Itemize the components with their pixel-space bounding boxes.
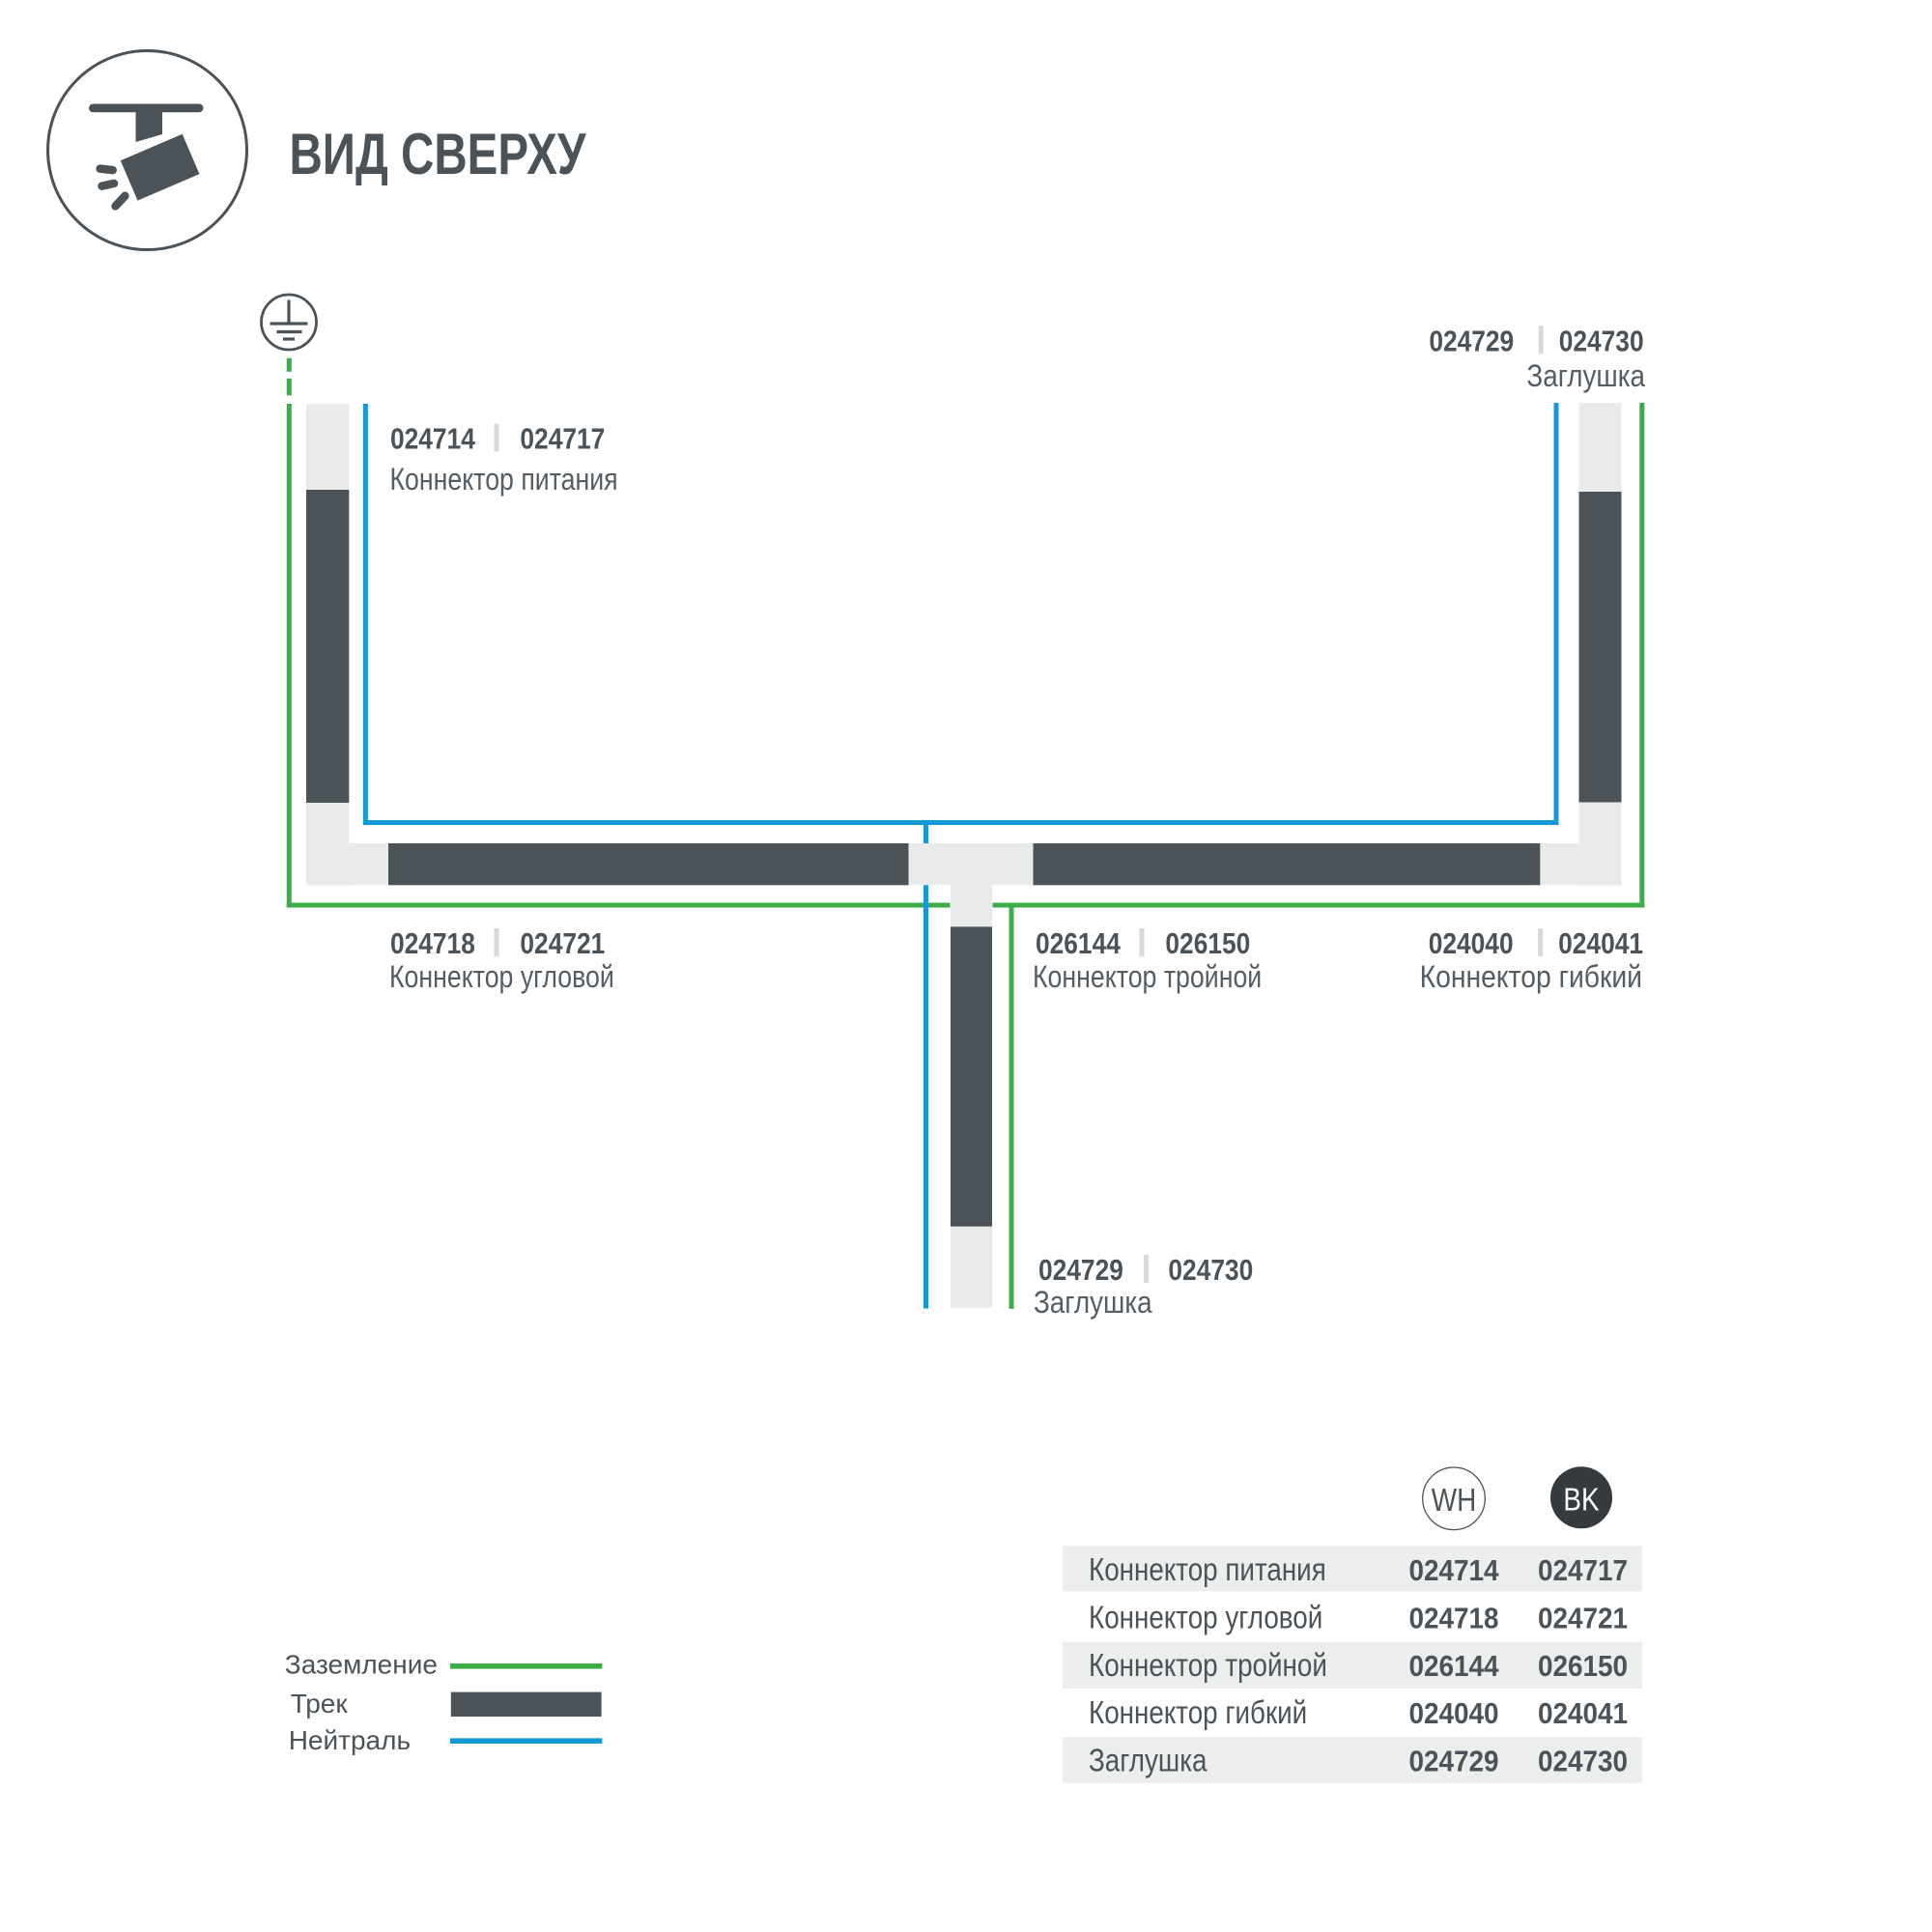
svg-text:024717: 024717 bbox=[520, 423, 605, 456]
svg-text:Коннектор гибкий: Коннектор гибкий bbox=[1420, 960, 1642, 994]
svg-text:Коннектор тройной: Коннектор тройной bbox=[1033, 960, 1262, 995]
svg-text:024730: 024730 bbox=[1168, 1254, 1253, 1287]
svg-text:Заглушка: Заглушка bbox=[1526, 359, 1645, 393]
svg-text:024040: 024040 bbox=[1429, 927, 1514, 960]
svg-text:024718: 024718 bbox=[390, 927, 475, 960]
svg-text:026144: 026144 bbox=[1408, 1649, 1499, 1683]
svg-text:Трек: Трек bbox=[291, 1689, 349, 1719]
svg-text:Заглушка: Заглушка bbox=[1089, 1743, 1207, 1778]
svg-text:024729: 024729 bbox=[1408, 1745, 1498, 1778]
svg-text:Коннектор питания: Коннектор питания bbox=[1089, 1552, 1326, 1588]
svg-text:024729: 024729 bbox=[1429, 325, 1514, 357]
svg-text:Коннектор угловой: Коннектор угловой bbox=[389, 960, 614, 995]
svg-text:Заглушка: Заглушка bbox=[1034, 1286, 1152, 1320]
svg-text:024041: 024041 bbox=[1558, 927, 1643, 960]
svg-text:024714: 024714 bbox=[390, 423, 475, 456]
svg-text:024730: 024730 bbox=[1538, 1745, 1628, 1778]
svg-text:024729: 024729 bbox=[1038, 1254, 1123, 1287]
svg-text:Заземление: Заземление bbox=[285, 1650, 438, 1680]
svg-text:026150: 026150 bbox=[1538, 1649, 1628, 1683]
svg-text:026144: 026144 bbox=[1036, 927, 1121, 960]
svg-text:Коннектор тройной: Коннектор тройной bbox=[1089, 1648, 1327, 1684]
svg-text:024730: 024730 bbox=[1559, 325, 1644, 357]
svg-text:Коннектор угловой: Коннектор угловой bbox=[1089, 1600, 1322, 1635]
svg-text:024717: 024717 bbox=[1538, 1554, 1628, 1588]
svg-text:Коннектор гибкий: Коннектор гибкий bbox=[1089, 1695, 1307, 1731]
svg-text:Нейтраль: Нейтраль bbox=[289, 1725, 411, 1755]
svg-text:Коннектор питания: Коннектор питания bbox=[390, 463, 618, 497]
svg-text:ВИД СВЕРХУ: ВИД СВЕРХУ bbox=[290, 123, 587, 187]
svg-text:024718: 024718 bbox=[1408, 1602, 1498, 1635]
svg-text:WH: WH bbox=[1432, 1483, 1476, 1519]
svg-text:024721: 024721 bbox=[520, 927, 605, 960]
svg-text:024041: 024041 bbox=[1538, 1697, 1628, 1731]
svg-text:024714: 024714 bbox=[1408, 1554, 1499, 1588]
svg-text:026150: 026150 bbox=[1165, 927, 1250, 960]
svg-text:024040: 024040 bbox=[1408, 1697, 1498, 1731]
svg-text:BK: BK bbox=[1563, 1482, 1600, 1518]
svg-text:024721: 024721 bbox=[1538, 1602, 1628, 1635]
